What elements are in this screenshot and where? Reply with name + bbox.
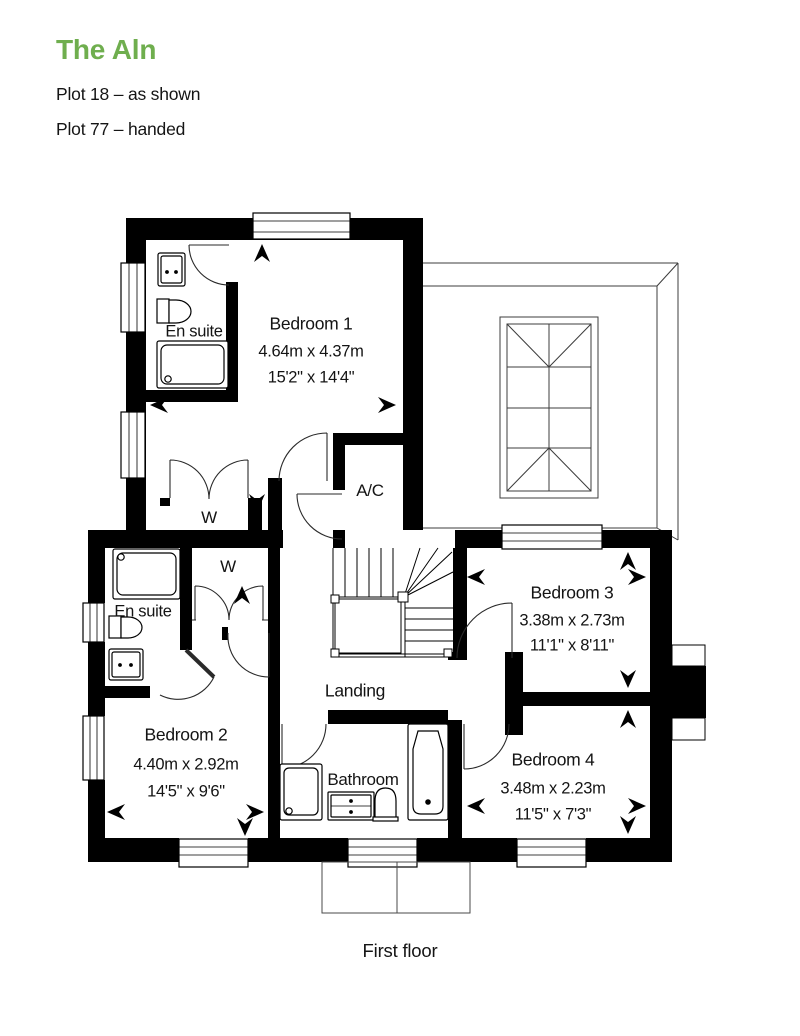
- bedroom4-label: Bedroom 4: [512, 750, 595, 771]
- floor-caption: First floor: [363, 940, 438, 962]
- door-bedroom1: [279, 433, 327, 481]
- door-bathroom: [282, 724, 326, 768]
- floorplan-page: The Aln Plot 18 – as shown Plot 77 – han…: [0, 0, 800, 1036]
- bedroom1-metric: 4.64m x 4.37m: [258, 343, 363, 362]
- bedroom1-imperial: 15'2" x 14'4": [268, 369, 355, 388]
- landing-label: Landing: [325, 681, 385, 702]
- door-ensuite1: [189, 245, 229, 285]
- page-title: The Aln: [56, 34, 156, 66]
- door-ensuite2: [160, 677, 214, 699]
- ensuite1-label: En suite: [165, 323, 222, 342]
- bedroom4-metric: 3.48m x 2.23m: [500, 780, 605, 799]
- porch-outline: [322, 862, 470, 913]
- door-wardrobe2: [195, 586, 263, 620]
- bedroom2-label: Bedroom 2: [145, 725, 228, 746]
- ensuite2-label: En suite: [114, 603, 171, 622]
- bedroom2-imperial: 14'5" x 9'6": [147, 783, 225, 802]
- door-bedroom4: [464, 724, 509, 769]
- staircase: [331, 548, 453, 657]
- door-wardrobe1: [170, 460, 248, 499]
- bedroom3-metric: 3.38m x 2.73m: [519, 612, 624, 631]
- bedroom3-label: Bedroom 3: [531, 583, 614, 604]
- sink-bathroom: [328, 792, 374, 820]
- bedroom2-metric: 4.40m x 2.92m: [133, 756, 238, 775]
- bathroom-label: Bathroom: [327, 770, 398, 790]
- toilet-ensuite1: [157, 299, 191, 323]
- door-bedroom2: [228, 633, 269, 677]
- wardrobe2-label: W: [220, 557, 236, 577]
- plot-line-2: Plot 77 – handed: [56, 119, 185, 140]
- rooflight-icon: [500, 317, 598, 498]
- plot-line-1: Plot 18 – as shown: [56, 84, 200, 105]
- bedroom3-imperial: 11'1" x 8'11": [530, 637, 614, 656]
- floor-plan-drawing: [0, 0, 800, 1036]
- bedroom4-imperial: 11'5" x 7'3": [515, 806, 592, 825]
- wardrobe1-label: W: [201, 508, 217, 528]
- ac-label: A/C: [356, 481, 383, 501]
- shower-bathroom: [280, 764, 322, 820]
- shower-ensuite1: [157, 341, 228, 388]
- shower-ensuite2: [113, 549, 180, 599]
- bedroom1-label: Bedroom 1: [270, 314, 353, 335]
- bathtub: [408, 724, 448, 820]
- sink-ensuite2: [109, 649, 143, 680]
- sink-ensuite1: [158, 253, 185, 286]
- toilet-bathroom: [373, 788, 398, 821]
